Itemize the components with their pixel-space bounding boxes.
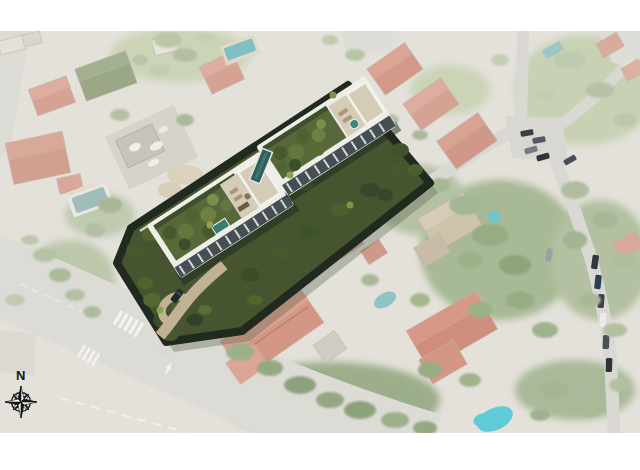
north-label: N bbox=[16, 368, 26, 383]
aerial-site-plan: N bbox=[0, 0, 640, 470]
site-plan-svg: N bbox=[0, 0, 640, 470]
aerial-photo: N bbox=[0, 27, 640, 452]
